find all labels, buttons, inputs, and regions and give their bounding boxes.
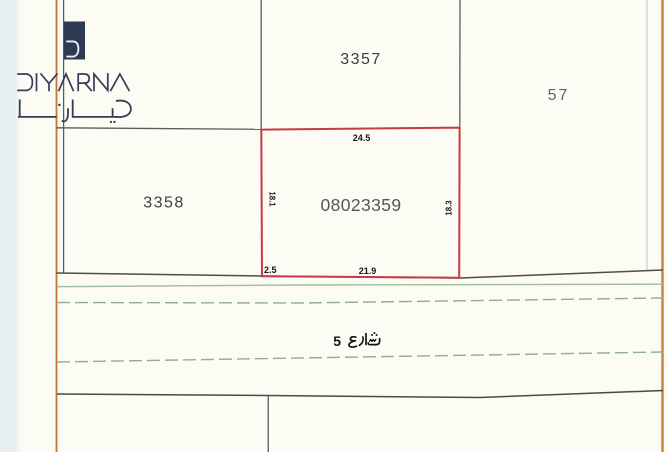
svg-text:3358: 3358 (143, 195, 185, 212)
svg-text:57: 57 (548, 87, 570, 104)
svg-text:18.1: 18.1 (268, 191, 277, 207)
svg-text:18.3: 18.3 (445, 200, 454, 216)
svg-text:3357: 3357 (340, 51, 382, 68)
svg-text:24.5: 24.5 (353, 133, 371, 143)
svg-text:5: 5 (333, 333, 341, 349)
svg-text:21.9: 21.9 (359, 266, 377, 276)
svg-text:08023359: 08023359 (320, 195, 401, 215)
svg-text:2.5: 2.5 (264, 265, 277, 275)
